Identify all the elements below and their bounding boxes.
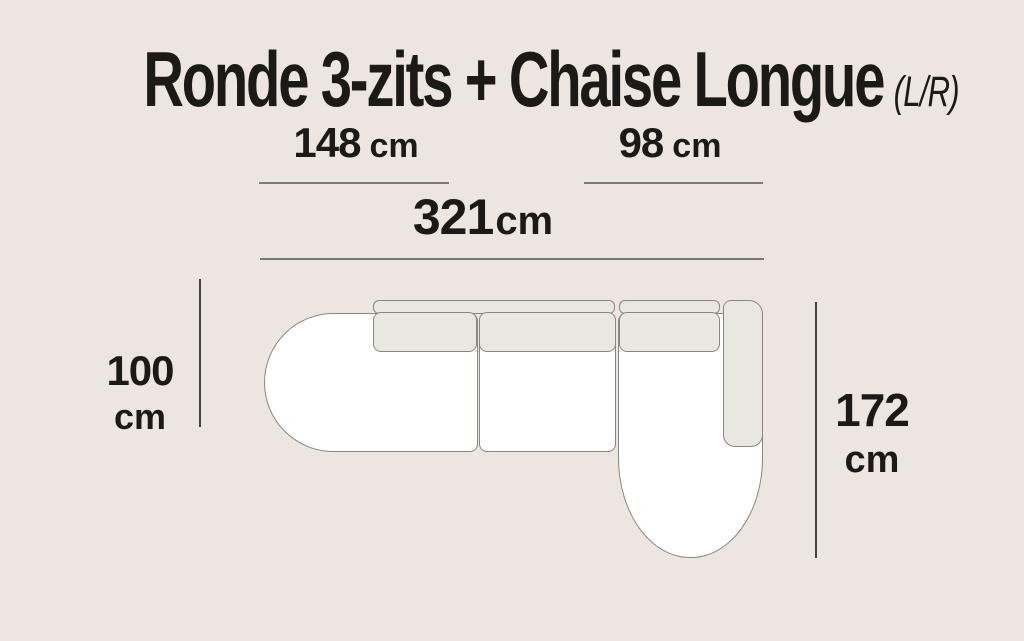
page-title: Ronde 3-zits + Chaise Longue (L/R) bbox=[143, 40, 880, 118]
dimension-label-chaise-length: 172 cm bbox=[806, 387, 938, 479]
dimension-label-total-width: 321cm bbox=[383, 192, 583, 242]
dimension-unit: cm bbox=[75, 399, 205, 435]
dimension-unit: cm bbox=[369, 127, 418, 165]
dimension-line-sofa-depth bbox=[199, 279, 201, 427]
dimension-label-chaise-section-width: 98cm bbox=[570, 122, 770, 164]
product-name: Ronde 3-zits + Chaise Longue bbox=[143, 35, 883, 123]
dimension-unit: cm bbox=[495, 199, 553, 243]
dimension-value: 172 bbox=[806, 387, 938, 433]
dimension-value: 98 bbox=[619, 119, 664, 166]
sofa-dimension-diagram: Ronde 3-zits + Chaise Longue (L/R) 148cm… bbox=[0, 0, 1024, 641]
dimension-value: 100 bbox=[75, 350, 205, 392]
dimension-value: 148 bbox=[293, 119, 360, 166]
dimension-label-left-section-width: 148cm bbox=[256, 122, 456, 164]
dimension-line-chaise-length bbox=[815, 302, 817, 558]
sofa-back-cushion-middle bbox=[479, 312, 616, 352]
orientation-suffix: (L/R) bbox=[894, 68, 959, 116]
sofa-back-cushion-left bbox=[373, 312, 477, 352]
dimension-line-total-width bbox=[260, 258, 764, 260]
dimension-value: 321 bbox=[413, 189, 493, 245]
sofa-right-armrest bbox=[723, 300, 763, 447]
dimension-line-left-section-width bbox=[259, 182, 449, 184]
dimension-label-sofa-depth: 100 cm bbox=[75, 350, 205, 435]
dimension-line-chaise-section-width bbox=[584, 182, 763, 184]
dimension-unit: cm bbox=[672, 127, 721, 165]
dimension-unit: cm bbox=[806, 441, 938, 479]
sofa-back-cushion-right bbox=[619, 312, 720, 352]
